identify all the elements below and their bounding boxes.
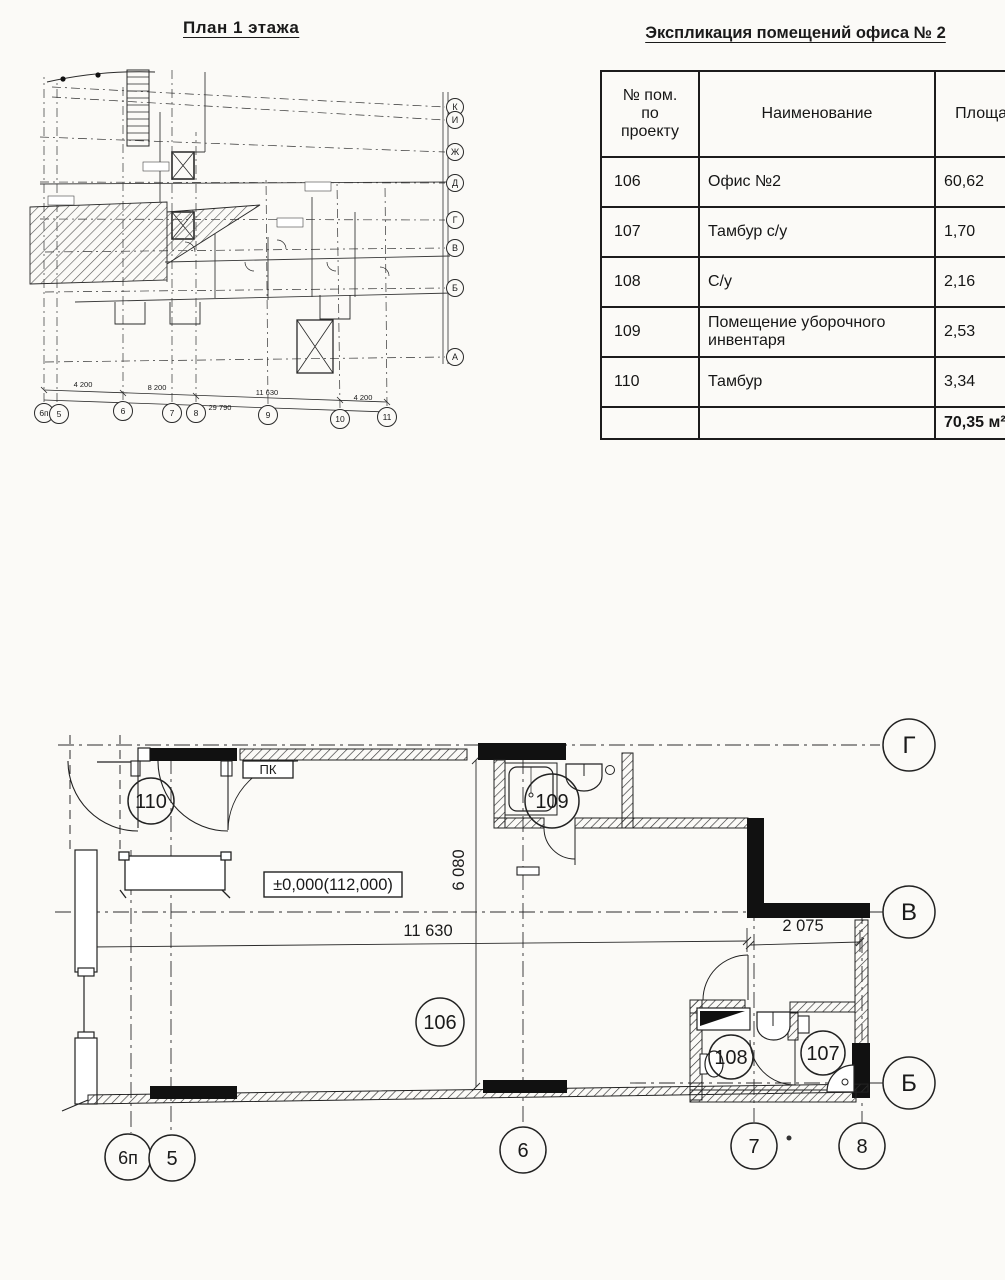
- svg-text:6: 6: [121, 406, 126, 416]
- room-109-door: [544, 828, 575, 865]
- table-row: 109 Помещение уборочного инвентаря 2,53: [601, 307, 1005, 357]
- elevation-mark: ±0,000(112,000): [273, 876, 393, 894]
- fire-cabinet-label: ПК: [260, 762, 277, 777]
- svg-text:Ж: Ж: [451, 147, 460, 157]
- svg-text:8: 8: [194, 408, 199, 418]
- svg-text:11 630: 11 630: [403, 922, 452, 940]
- sink-109: [566, 764, 615, 791]
- room-number: 106: [601, 157, 699, 207]
- svg-text:6 080: 6 080: [450, 849, 468, 890]
- grid-label-8: 8: [856, 1136, 867, 1158]
- door-106-to-107: [703, 955, 748, 1000]
- room-area: 2,53: [935, 307, 1005, 357]
- grid-circles-bottom: [105, 1123, 885, 1181]
- svg-text:29 790: 29 790: [209, 403, 232, 412]
- svg-text:7: 7: [170, 408, 175, 418]
- room-number: 109: [601, 307, 699, 357]
- axis-label-b: Б: [901, 1070, 917, 1097]
- explication-table-title: Экспликация помещений офиса № 2: [598, 24, 993, 43]
- room-area: 3,34: [935, 357, 1005, 407]
- hatched-area: [30, 202, 260, 284]
- room-label-110: 110: [135, 791, 167, 813]
- room-name: Тамбур: [699, 357, 935, 407]
- svg-text:Г: Г: [453, 215, 458, 225]
- room-area: 2,16: [935, 257, 1005, 307]
- table-row: 108 С/у 2,16: [601, 257, 1005, 307]
- overview-floor-plan: 4 200 8 200 11 630 4 200 29 790 К И Ж Д …: [15, 12, 485, 442]
- room-name: Офис №2: [699, 157, 935, 207]
- svg-text:9: 9: [266, 410, 271, 420]
- curtain-wall-left: [62, 735, 138, 1111]
- room-number: 108: [601, 257, 699, 307]
- entrance-portals: [115, 295, 350, 373]
- door-107-to-108: [750, 1040, 795, 1085]
- room-label-109: 109: [535, 791, 568, 813]
- table-row: 107 Тамбур с/у 1,70: [601, 207, 1005, 257]
- col-header-number: № пом. по проекту: [618, 87, 682, 141]
- svg-text:6п: 6п: [39, 408, 49, 418]
- room-name: С/у: [699, 257, 935, 307]
- room-label-107: 107: [806, 1043, 839, 1065]
- svg-text:10: 10: [335, 414, 345, 424]
- axis-lines: [55, 745, 880, 1133]
- axis-label-g: Г: [903, 732, 916, 759]
- table-header-row: № пом. по проекту Наименование Площадь: [601, 71, 1005, 157]
- room-name: Помещение уборочного инвентаря: [699, 307, 935, 357]
- room-number: 110: [601, 357, 699, 407]
- table-row: 110 Тамбур 3,34: [601, 357, 1005, 407]
- col-header-name: Наименование: [699, 71, 935, 157]
- axis-leaders: [868, 912, 883, 1083]
- svg-text:5: 5: [57, 409, 62, 419]
- stray-dot: [787, 1136, 792, 1141]
- threshold-mark: [517, 867, 539, 875]
- svg-text:8 200: 8 200: [148, 383, 167, 392]
- explication-table: № пом. по проекту Наименование Площадь 1…: [600, 70, 1005, 440]
- table-row: 106 Офис №2 60,62: [601, 157, 1005, 207]
- vestibule-partition: [119, 852, 231, 898]
- svg-text:Д: Д: [452, 178, 458, 188]
- svg-text:И: И: [452, 115, 458, 125]
- svg-text:Б: Б: [452, 283, 458, 293]
- grid-label-6p: 6п: [118, 1148, 138, 1168]
- main-floor-plan: 11 630 2 075 6 080: [0, 680, 1005, 1210]
- table-total-row: 70,35 м²: [601, 407, 1005, 439]
- stair-shaft: [127, 70, 149, 146]
- grid-label-5: 5: [166, 1148, 177, 1170]
- axis-label-v: В: [901, 899, 917, 926]
- room-area: 60,62: [935, 157, 1005, 207]
- svg-text:4 200: 4 200: [74, 380, 93, 389]
- grid-label-7: 7: [748, 1136, 759, 1158]
- svg-text:К: К: [452, 102, 458, 112]
- room-label-108: 108: [714, 1047, 747, 1069]
- svg-text:2 075: 2 075: [782, 917, 823, 935]
- col-header-area: Площадь: [935, 71, 1005, 157]
- overview-axis-circles-right: [447, 99, 464, 366]
- dimension-lines: [86, 756, 864, 1091]
- grid-label-6: 6: [517, 1140, 528, 1162]
- room-label-106: 106: [423, 1012, 456, 1034]
- svg-text:В: В: [452, 243, 458, 253]
- svg-text:11: 11: [383, 412, 392, 422]
- svg-text:А: А: [452, 352, 458, 362]
- svg-text:4 200: 4 200: [354, 393, 373, 402]
- room-area: 1,70: [935, 207, 1005, 257]
- room-number: 107: [601, 207, 699, 257]
- room-name: Тамбур с/у: [699, 207, 935, 257]
- svg-text:11 630: 11 630: [256, 388, 278, 397]
- total-area: 70,35 м²: [935, 407, 1005, 439]
- north-wall: [138, 743, 566, 761]
- overview-building-outline: [30, 70, 452, 373]
